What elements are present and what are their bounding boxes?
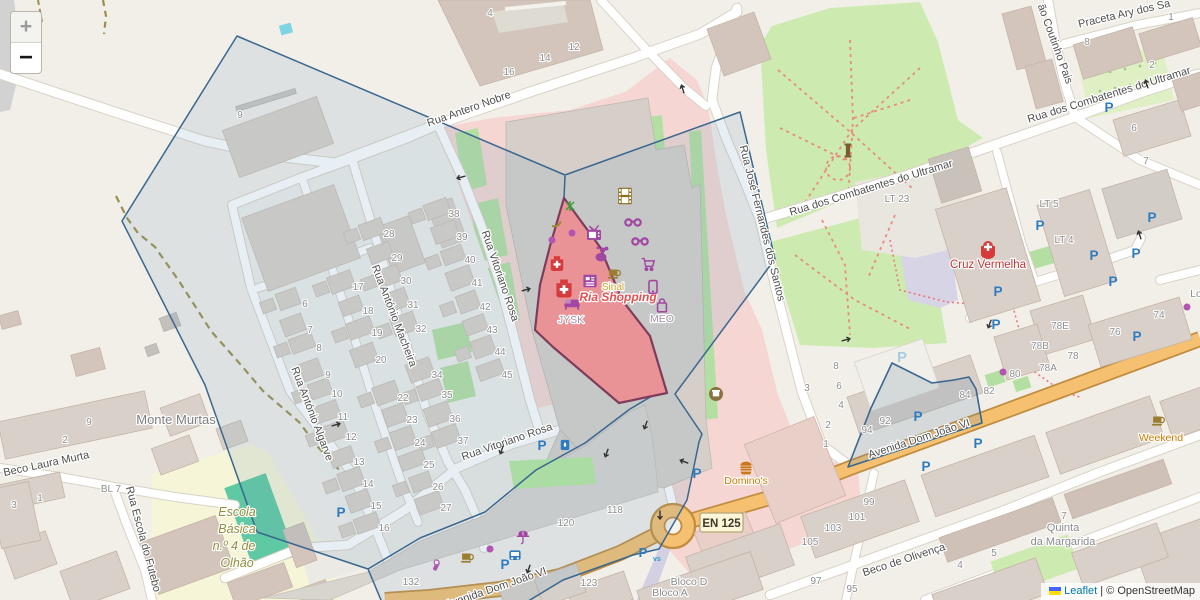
svg-text:37: 37 xyxy=(457,436,469,447)
svg-text:16: 16 xyxy=(378,523,390,534)
svg-text:P: P xyxy=(1035,218,1044,233)
svg-text:7: 7 xyxy=(307,325,313,336)
svg-text:97: 97 xyxy=(810,576,822,587)
svg-text:42: 42 xyxy=(479,302,491,313)
svg-text:P: P xyxy=(537,438,546,453)
svg-text:1: 1 xyxy=(823,439,829,450)
svg-text:16: 16 xyxy=(503,67,515,78)
svg-text:MEO: MEO xyxy=(650,313,674,325)
svg-text:1: 1 xyxy=(1168,12,1174,23)
svg-text:99: 99 xyxy=(863,497,875,508)
svg-text:22: 22 xyxy=(397,393,409,404)
svg-text:P: P xyxy=(921,459,930,474)
svg-text:28: 28 xyxy=(383,229,395,240)
svg-text:Domino's: Domino's xyxy=(724,475,767,487)
svg-text:84: 84 xyxy=(959,390,971,401)
svg-text:39: 39 xyxy=(456,232,468,243)
svg-text:25: 25 xyxy=(423,460,435,471)
svg-text:95: 95 xyxy=(846,584,858,595)
svg-text:n.º 4 de: n.º 4 de xyxy=(213,539,256,553)
svg-text:103: 103 xyxy=(825,523,842,534)
svg-text:4: 4 xyxy=(957,560,963,571)
svg-text:41: 41 xyxy=(471,278,483,289)
svg-text:105: 105 xyxy=(802,537,819,548)
svg-text:123: 123 xyxy=(581,578,598,589)
svg-text:45: 45 xyxy=(501,370,513,381)
svg-text:P: P xyxy=(991,317,1000,332)
svg-text:da Margarida: da Margarida xyxy=(1031,536,1097,548)
svg-text:6: 6 xyxy=(836,381,842,392)
svg-text:17: 17 xyxy=(352,282,364,293)
svg-text:13: 13 xyxy=(353,457,365,468)
svg-text:P: P xyxy=(1132,329,1141,344)
svg-text:Weekend: Weekend xyxy=(1139,432,1183,444)
svg-text:14: 14 xyxy=(539,53,551,64)
svg-text:3: 3 xyxy=(804,383,810,394)
svg-text:18: 18 xyxy=(362,306,374,317)
svg-text:11: 11 xyxy=(338,412,349,423)
svg-text:31: 31 xyxy=(407,300,419,311)
svg-text:40: 40 xyxy=(464,255,476,266)
svg-text:78: 78 xyxy=(1067,351,1079,362)
svg-text:5: 5 xyxy=(991,548,997,559)
svg-text:23: 23 xyxy=(406,415,418,426)
svg-text:2: 2 xyxy=(62,435,68,446)
svg-text:30: 30 xyxy=(400,276,412,287)
svg-text:P: P xyxy=(973,436,982,451)
svg-text:10: 10 xyxy=(331,389,343,400)
svg-text:80: 80 xyxy=(1009,369,1021,380)
svg-text:74: 74 xyxy=(1153,310,1165,321)
svg-text:6: 6 xyxy=(1131,123,1137,134)
svg-text:29: 29 xyxy=(391,253,403,264)
svg-text:120: 120 xyxy=(558,518,575,529)
svg-text:38: 38 xyxy=(448,209,460,220)
svg-text:2: 2 xyxy=(1149,60,1155,71)
svg-text:9: 9 xyxy=(86,417,92,428)
svg-text:BL 7: BL 7 xyxy=(101,484,122,495)
svg-text:8: 8 xyxy=(833,361,839,372)
svg-text:34: 34 xyxy=(431,370,443,381)
svg-text:P: P xyxy=(993,284,1002,299)
svg-text:P: P xyxy=(1089,248,1098,263)
svg-text:Olhão: Olhão xyxy=(220,556,253,570)
svg-text:P: P xyxy=(692,466,701,481)
svg-text:P: P xyxy=(913,409,922,424)
svg-text:94: 94 xyxy=(861,425,873,436)
svg-text:LT 4: LT 4 xyxy=(1054,235,1074,246)
svg-text:Bloco A: Bloco A xyxy=(652,587,688,599)
svg-text:14: 14 xyxy=(362,479,374,490)
svg-text:78B: 78B xyxy=(1031,341,1049,352)
svg-text:26: 26 xyxy=(432,482,444,493)
svg-text:P: P xyxy=(1131,246,1140,261)
svg-text:19: 19 xyxy=(371,328,383,339)
svg-text:12: 12 xyxy=(568,42,580,53)
svg-text:36: 36 xyxy=(449,414,461,425)
svg-text:4: 4 xyxy=(838,400,844,411)
svg-text:Básica: Básica xyxy=(218,522,256,536)
svg-text:2: 2 xyxy=(825,420,831,431)
svg-text:P: P xyxy=(500,557,509,572)
svg-text:1: 1 xyxy=(37,493,43,504)
svg-text:JYSK: JYSK xyxy=(558,314,584,326)
svg-text:9: 9 xyxy=(237,110,243,121)
svg-text:P: P xyxy=(639,545,648,560)
svg-text:7: 7 xyxy=(1061,511,1067,522)
svg-text:EN 125: EN 125 xyxy=(702,518,741,530)
svg-text:101: 101 xyxy=(849,512,866,523)
svg-text:P: P xyxy=(1108,274,1117,289)
svg-text:76: 76 xyxy=(1109,327,1121,338)
svg-text:Monte Murtas: Monte Murtas xyxy=(136,412,216,427)
svg-text:Lo: Lo xyxy=(1190,288,1200,300)
svg-text:vs: vs xyxy=(653,556,661,563)
svg-text:44: 44 xyxy=(494,347,506,358)
svg-text:7: 7 xyxy=(1143,156,1149,167)
svg-text:78E: 78E xyxy=(1051,321,1069,332)
svg-text:LT 5: LT 5 xyxy=(1039,199,1059,210)
svg-text:118: 118 xyxy=(607,505,623,516)
svg-text:4: 4 xyxy=(487,8,493,19)
svg-text:32: 32 xyxy=(415,324,427,335)
svg-text:27: 27 xyxy=(440,503,452,514)
svg-text:8: 8 xyxy=(316,343,322,354)
svg-text:3: 3 xyxy=(11,500,17,511)
svg-text:12: 12 xyxy=(345,432,357,443)
svg-text:43: 43 xyxy=(486,325,498,336)
svg-text:24: 24 xyxy=(414,438,426,449)
svg-text:132: 132 xyxy=(403,577,420,588)
svg-text:92: 92 xyxy=(879,416,891,427)
svg-text:8: 8 xyxy=(1084,37,1090,48)
svg-text:15: 15 xyxy=(370,501,382,512)
svg-text:Sinal: Sinal xyxy=(602,282,624,293)
svg-text:6: 6 xyxy=(302,299,308,310)
svg-text:82: 82 xyxy=(983,386,995,397)
svg-text:P: P xyxy=(897,349,907,366)
svg-text:Escola: Escola xyxy=(218,505,256,519)
svg-text:Quinta: Quinta xyxy=(1047,522,1080,534)
svg-text:P: P xyxy=(336,505,345,520)
svg-text:P: P xyxy=(1104,100,1113,115)
svg-text:9: 9 xyxy=(325,370,331,381)
svg-text:78A: 78A xyxy=(1039,363,1057,374)
svg-text:LT 23: LT 23 xyxy=(885,194,910,205)
svg-text:Cruz Vermelha: Cruz Vermelha xyxy=(950,259,1027,271)
svg-text:35: 35 xyxy=(441,390,453,401)
svg-text:20: 20 xyxy=(375,355,387,366)
svg-text:P: P xyxy=(1147,210,1156,225)
